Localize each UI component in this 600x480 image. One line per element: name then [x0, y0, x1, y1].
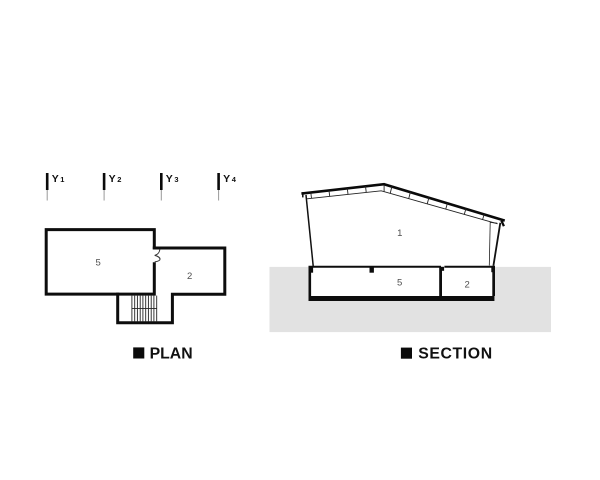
svg-text:4: 4 — [232, 175, 237, 184]
svg-text:Y: Y — [166, 173, 173, 185]
svg-text:5: 5 — [397, 278, 402, 289]
svg-text:2: 2 — [117, 175, 121, 184]
svg-text:1: 1 — [60, 175, 64, 184]
svg-text:PLAN: PLAN — [150, 345, 193, 362]
svg-text:Y: Y — [109, 173, 116, 185]
svg-text:3: 3 — [174, 175, 178, 184]
svg-text:5: 5 — [96, 258, 101, 269]
svg-text:Y: Y — [52, 173, 59, 185]
svg-text:1: 1 — [397, 228, 402, 239]
svg-text:Y: Y — [223, 173, 230, 185]
svg-text:2: 2 — [187, 271, 192, 282]
svg-text:2: 2 — [465, 280, 470, 291]
svg-text:SECTION: SECTION — [418, 346, 493, 363]
